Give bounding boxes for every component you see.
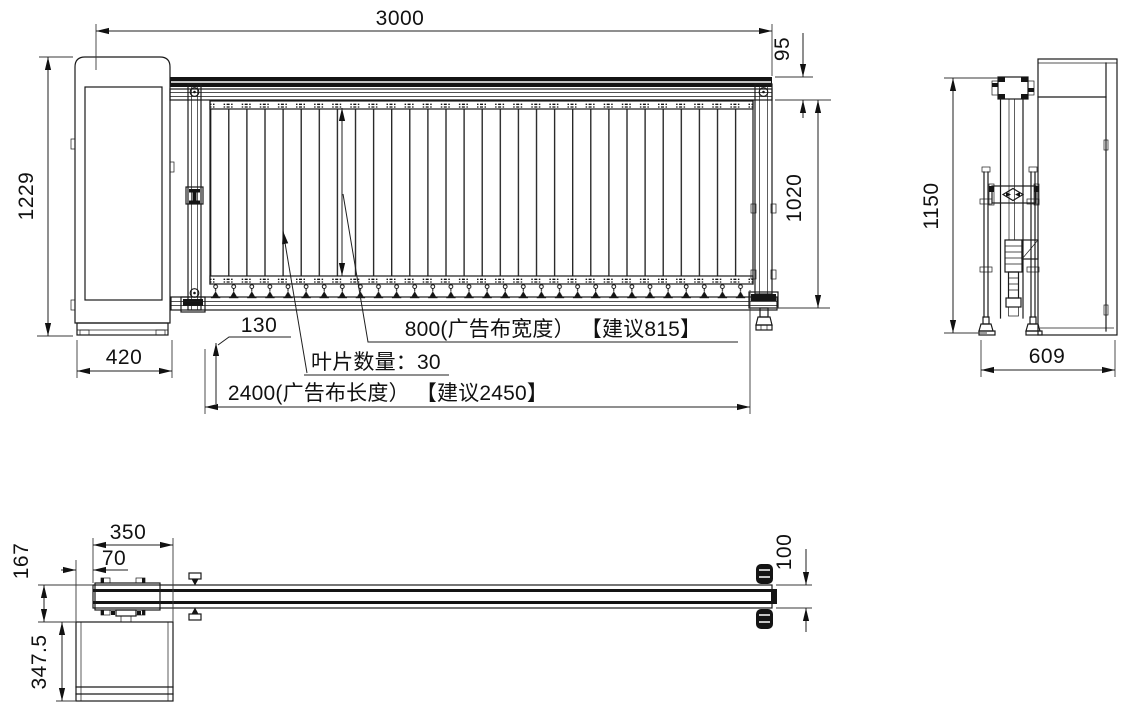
banner-length-note: 2400(广告布长度） 【建议2450】 <box>228 382 548 405</box>
plan-post-connector <box>116 610 136 616</box>
dim-overall-length: 3000 <box>376 7 425 30</box>
front-boom <box>170 77 772 100</box>
post-adjustable-foot <box>756 308 772 330</box>
dim-cabinet-depth: 347.5 <box>28 634 51 689</box>
plan-strut-clips <box>189 573 201 620</box>
plan-view: 350 70 167 347.5 100 <box>10 521 812 701</box>
technical-drawing: 3000 1229 95 1020 420 130 800(广 <box>0 0 1142 718</box>
plan-end-rollers <box>756 564 773 629</box>
dim-mount-length: 350 <box>110 521 147 544</box>
side-mechanism <box>979 99 1042 335</box>
dim-under-boom-height: 1020 <box>783 174 806 223</box>
dim-total-height: 1229 <box>15 172 38 221</box>
dim-skirt-ground-gap: 130 <box>241 314 278 337</box>
side-boom-section <box>992 77 1034 99</box>
dim-boom-width: 100 <box>773 534 796 571</box>
side-view: 1150 609 <box>920 59 1117 377</box>
side-cabinet <box>1038 59 1117 335</box>
front-view: 3000 1229 95 1020 420 130 800(广 <box>15 7 831 414</box>
dim-boom-offset: 70 <box>102 547 126 570</box>
cabinet-door-panel <box>85 87 162 300</box>
dim-boom-to-cabinet: 167 <box>10 543 33 580</box>
dim-side-depth: 609 <box>1029 345 1066 368</box>
blade-count-note: 叶片数量：30 <box>311 351 441 374</box>
boom-lower-rail <box>170 89 772 100</box>
cabinet-body <box>75 57 170 323</box>
curtain-blades <box>210 109 753 276</box>
front-curtain <box>210 101 753 299</box>
front-left-strut <box>181 84 205 312</box>
cabinet-plinth <box>77 323 168 335</box>
dim-cabinet-width: 420 <box>106 346 143 369</box>
plan-dimensions: 350 70 167 347.5 100 <box>10 521 812 701</box>
side-spring <box>1005 240 1022 316</box>
drawing-canvas: 3000 1229 95 1020 420 130 800(广 <box>0 0 1142 718</box>
boom-end-cap <box>771 589 777 604</box>
front-cabinet <box>71 57 174 335</box>
plan-cabinet <box>76 622 173 701</box>
dim-boom-height: 95 <box>771 37 794 61</box>
dim-side-height: 1150 <box>920 182 943 229</box>
banner-width-note: 800(广告布宽度） 【建议815】 <box>405 318 702 341</box>
side-dimensions: 1150 609 <box>920 78 1115 377</box>
plan-boom <box>93 585 777 608</box>
